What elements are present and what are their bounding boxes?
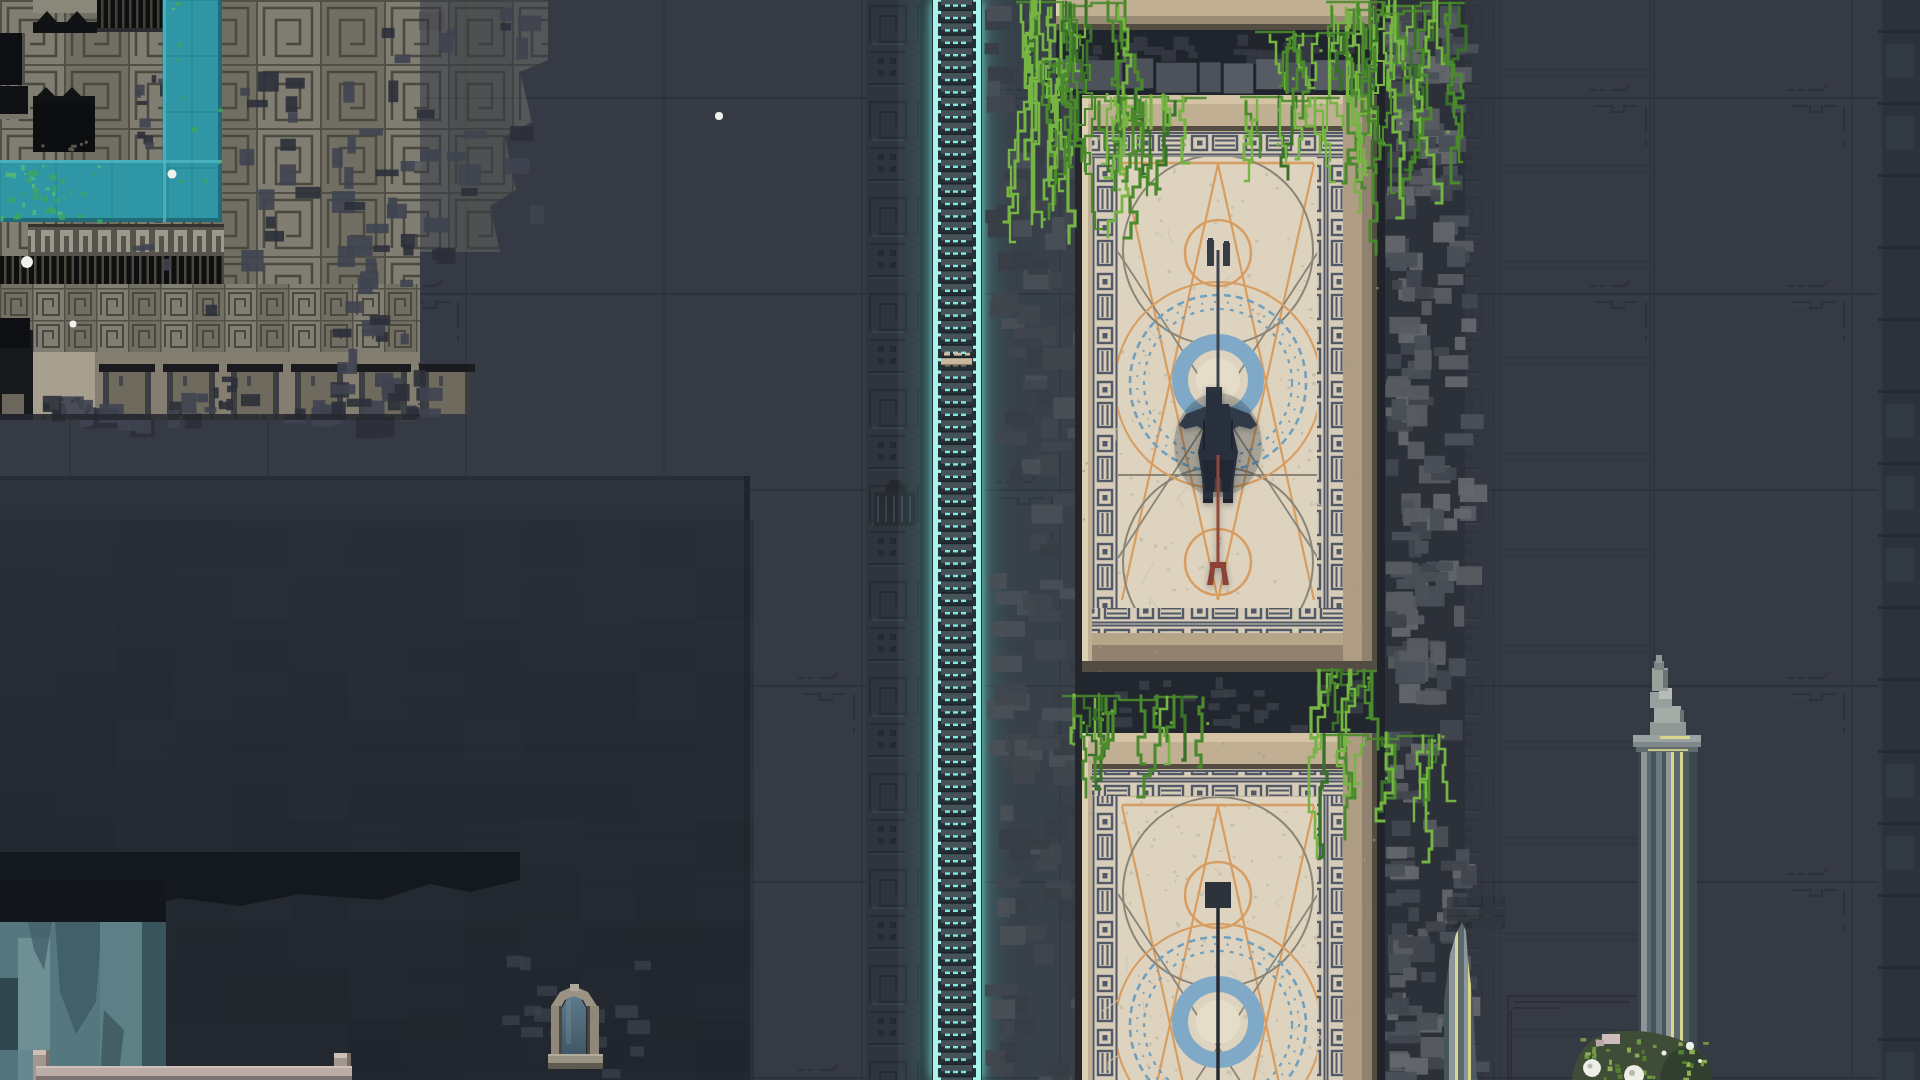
game-scene xyxy=(0,0,1920,1080)
tapestry-panel-lower[interactable] xyxy=(1082,733,1377,1080)
game-viewport[interactable] xyxy=(0,0,1920,1080)
ornament-wall-strip xyxy=(866,0,934,1080)
glowing-ladder[interactable] xyxy=(932,0,982,1080)
stone-column xyxy=(1633,735,1701,1080)
cave-walls xyxy=(0,922,166,1080)
